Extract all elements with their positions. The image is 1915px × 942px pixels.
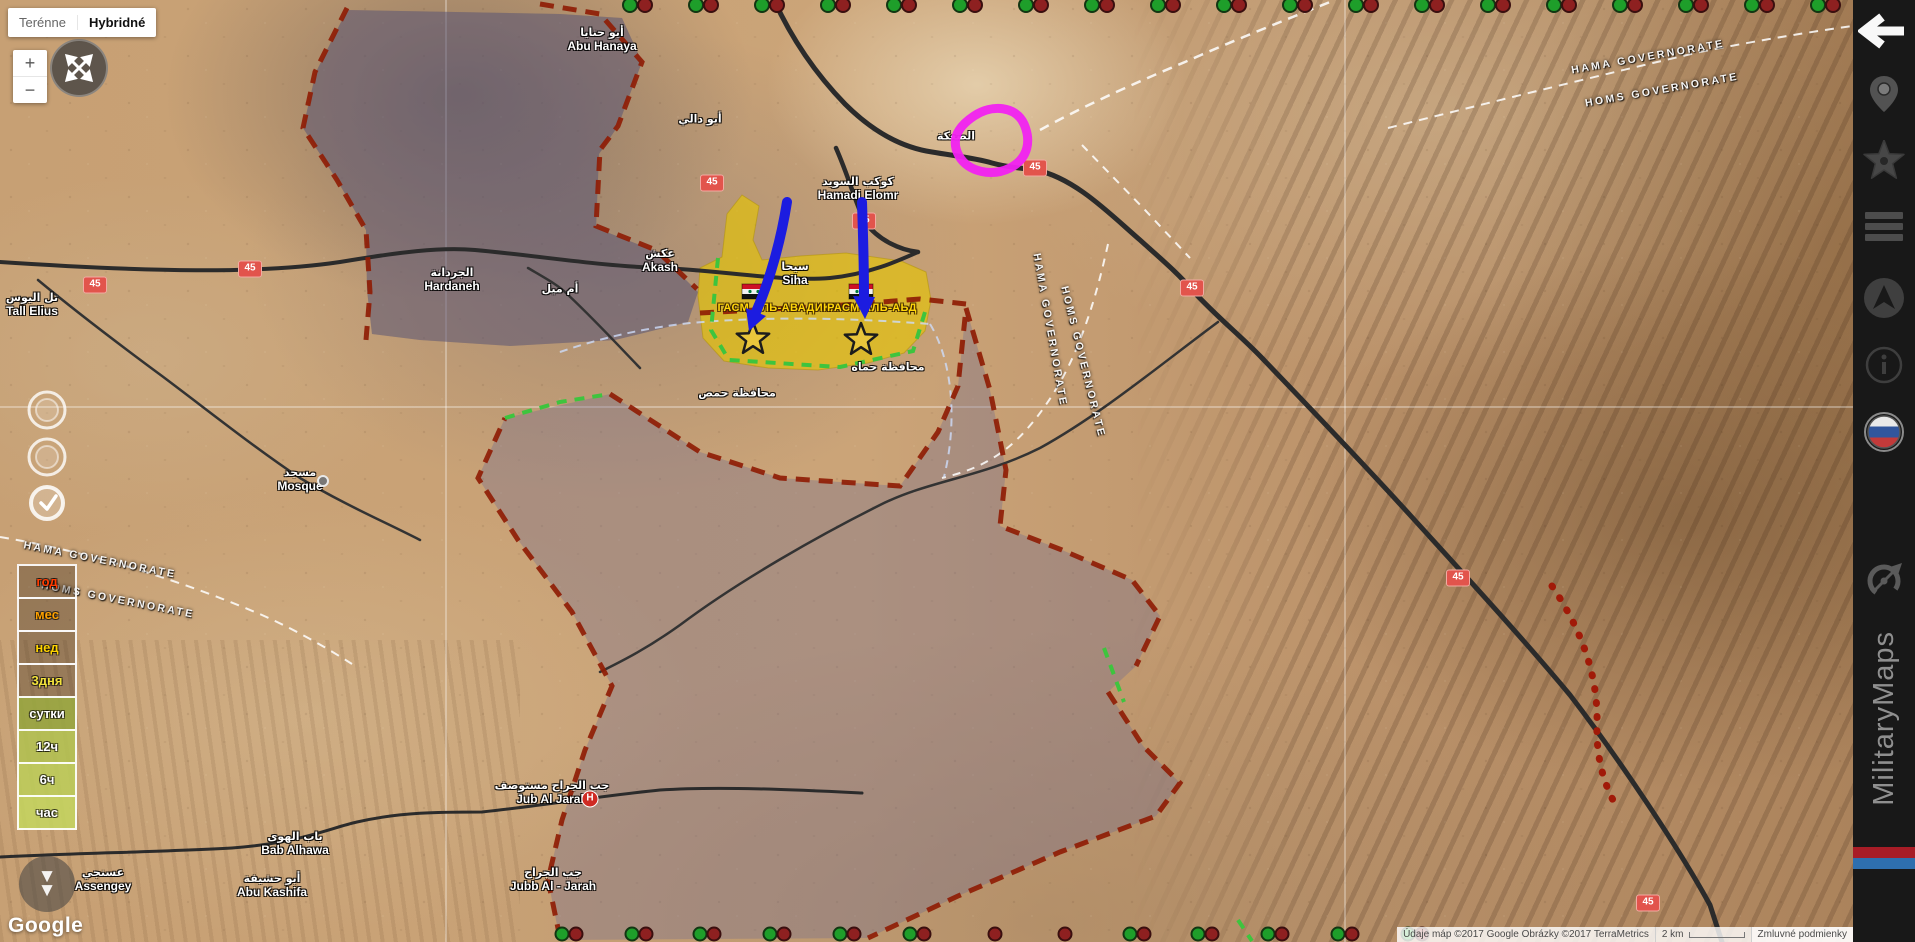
green-unit-dot[interactable] [1547,0,1561,12]
green-unit-dot[interactable] [887,0,901,12]
green-unit-dot[interactable] [1332,928,1345,941]
red-unit-dot[interactable] [1346,928,1359,941]
red-unit-dot[interactable] [968,0,982,12]
green-unit-dot[interactable] [1192,928,1205,941]
green-unit-dot[interactable] [1415,0,1429,12]
green-unit-dot[interactable] [1151,0,1165,12]
red-unit-dot[interactable] [1100,0,1114,12]
red-unit-dot[interactable] [1298,0,1312,12]
green-unit-dot[interactable] [821,0,835,12]
red-unit-dot[interactable] [902,0,916,12]
brand-vertical: MilitaryMaps [1853,620,1915,816]
control-zone-yellow [698,195,931,370]
attribution-bar: Údaje máp ©2017 Google Obrázky ©2017 Ter… [1397,927,1853,942]
time-legend: годмеснед3днясутки12ч6ччас [17,566,77,830]
clock-ring-marker[interactable] [31,487,63,519]
back-arrow-icon [1858,12,1910,50]
language-button[interactable] [1853,410,1915,454]
green-unit-dot[interactable] [764,928,777,941]
location-button[interactable] [1853,72,1915,116]
scale-rule [1689,932,1745,938]
green-unit-dot[interactable] [1481,0,1495,12]
compass-button[interactable] [1853,556,1915,606]
legend-row[interactable]: сутки [17,696,77,731]
legend-row[interactable]: год [17,564,77,599]
green-unit-dot[interactable] [834,928,847,941]
red-unit-dot[interactable] [1276,928,1289,941]
syrian-flag-marker [742,284,766,299]
layers-list-button[interactable] [1853,210,1915,244]
red-unit-dot[interactable] [918,928,931,941]
red-unit-dot[interactable] [1496,0,1510,12]
legend-row[interactable]: 12ч [17,729,77,764]
red-unit-dot[interactable] [1826,0,1840,12]
legend-row[interactable]: 6ч [17,762,77,797]
app-sidebar: MilitaryMaps [1853,0,1915,942]
green-unit-dot[interactable] [694,928,707,941]
red-unit-dot[interactable] [1034,0,1048,12]
red-unit-dot[interactable] [1232,0,1246,12]
chevron-down-icon: ▼ [38,884,57,898]
expand-arrows-icon [64,53,94,83]
red-unit-dot[interactable] [778,928,791,941]
map-type-switcher: Terénne Hybridné [8,8,156,37]
green-unit-dot[interactable] [1745,0,1759,12]
green-unit-dot[interactable] [953,0,967,12]
frontline-red-dotted [1552,586,1614,802]
green-unit-dot[interactable] [1613,0,1627,12]
zoom-out-button[interactable]: − [13,77,47,103]
compass-icon [1859,556,1909,606]
green-unit-dot[interactable] [1262,928,1275,941]
map-data-credit: Údaje máp ©2017 Google Obrázky ©2017 Ter… [1397,927,1655,942]
map-scale: 2 km [1655,927,1751,942]
red-unit-dot[interactable] [570,928,583,941]
green-unit-dot[interactable] [1124,928,1137,941]
info-icon [1863,344,1905,386]
expand-map-button[interactable] [50,39,108,97]
legend-row[interactable]: 3дня [17,663,77,698]
navigation-button[interactable] [1853,276,1915,320]
red-unit-dot[interactable] [1694,0,1708,12]
green-unit-dot[interactable] [1085,0,1099,12]
red-unit-dot[interactable] [1760,0,1774,12]
red-unit-dot[interactable] [836,0,850,12]
green-unit-dot[interactable] [1679,0,1693,12]
scale-label: 2 km [1662,929,1684,940]
red-unit-dot[interactable] [1166,0,1180,12]
red-unit-dot[interactable] [848,928,861,941]
zoom-control: + − [13,50,47,103]
map-type-terrain-button[interactable]: Terénne [8,15,77,30]
legend-row[interactable]: мес [17,597,77,632]
back-button[interactable] [1853,12,1915,50]
green-unit-dot[interactable] [1811,0,1825,12]
russian-flag-icon [1862,410,1906,454]
red-unit-dot[interactable] [1562,0,1576,12]
red-unit-dot[interactable] [640,928,653,941]
red-unit-dot[interactable] [638,0,652,12]
map-overlay-graphics [0,0,1915,942]
red-unit-dot[interactable] [704,0,718,12]
navigation-icon [1862,276,1906,320]
green-unit-dot[interactable] [623,0,637,12]
green-unit-dot[interactable] [556,928,569,941]
map-type-hybrid-button[interactable]: Hybridné [77,15,156,30]
blue-stripe [1853,858,1915,869]
info-button[interactable] [1853,344,1915,386]
legend-row[interactable]: нед [17,630,77,665]
green-unit-dot[interactable] [689,0,703,12]
red-unit-dot[interactable] [1138,928,1151,941]
green-unit-dot[interactable] [1217,0,1231,12]
syrian-flag-marker [849,284,873,299]
legend-row[interactable]: час [17,795,77,830]
google-logo[interactable]: Google [8,914,83,938]
red-unit-dot[interactable] [1059,928,1072,941]
red-unit-dot[interactable] [1430,0,1444,12]
favorites-button[interactable] [1853,140,1915,186]
red-unit-dot[interactable] [708,928,721,941]
green-unit-dot[interactable] [755,0,769,12]
green-unit-dot[interactable] [904,928,917,941]
green-unit-dot[interactable] [1283,0,1297,12]
star-icon [1861,140,1907,186]
brand-text: MilitaryMaps [1868,631,1901,806]
green-unit-dot[interactable] [626,928,639,941]
event-ring-marker[interactable] [29,439,65,475]
green-unit-dot[interactable] [1349,0,1363,12]
location-pin-icon [1862,72,1906,116]
zoom-in-button[interactable]: + [13,50,47,77]
terms-link[interactable]: Zmluvné podmienky [1751,927,1853,942]
red-unit-dot[interactable] [989,928,1002,941]
scroll-down-button[interactable]: ▼ ▼ [19,856,75,912]
militarymaps-app: أبو حناياAbu Hanayaتل اليوسTall Eliusالج… [0,0,1915,942]
event-ring-marker[interactable] [29,392,65,428]
red-unit-dot[interactable] [1206,928,1219,941]
red-stripe [1853,847,1915,858]
list-icon [1864,210,1904,244]
green-unit-dot[interactable] [1019,0,1033,12]
red-unit-dot[interactable] [770,0,784,12]
red-unit-dot[interactable] [1628,0,1642,12]
red-unit-dot[interactable] [1364,0,1378,12]
